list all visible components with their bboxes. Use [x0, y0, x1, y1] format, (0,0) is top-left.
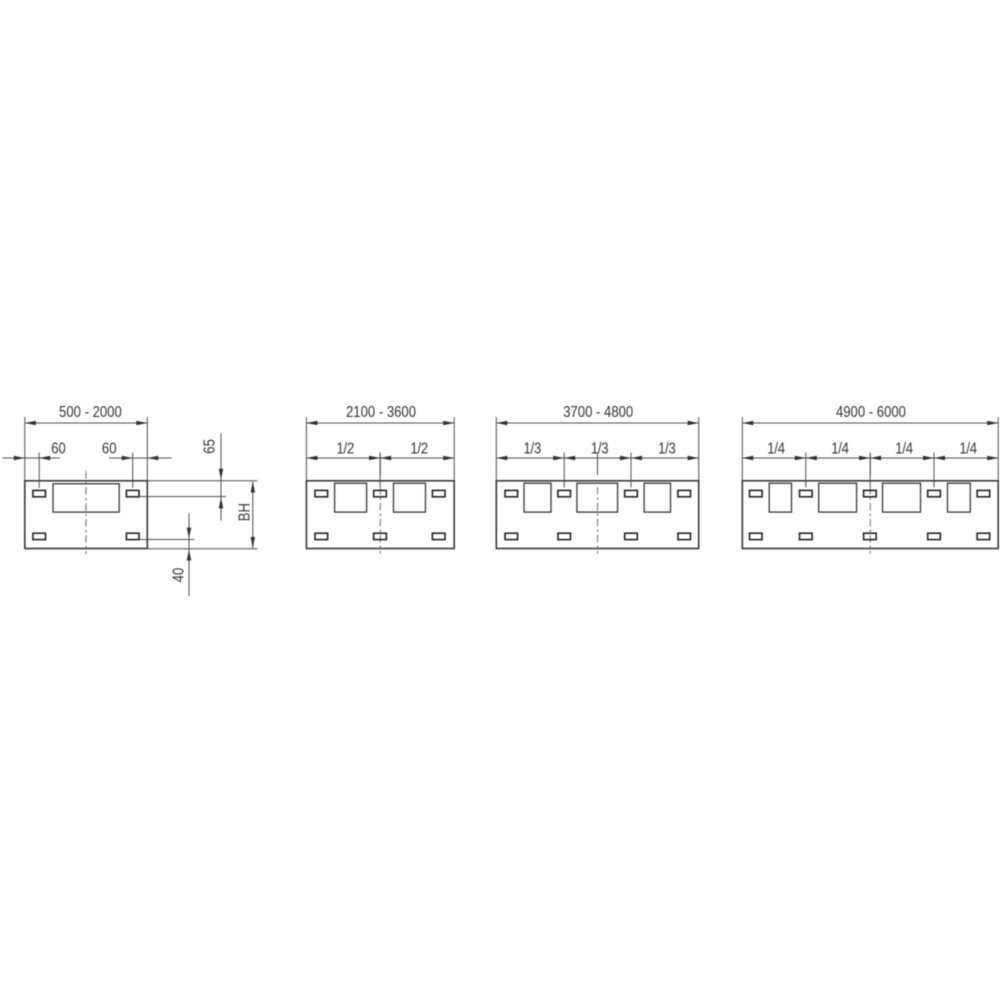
svg-text:3700 - 4800: 3700 - 4800	[563, 404, 633, 421]
svg-text:65: 65	[201, 439, 218, 454]
svg-text:4900 - 6000: 4900 - 6000	[836, 404, 906, 421]
svg-text:1/2: 1/2	[410, 440, 428, 457]
svg-text:BH: BH	[236, 503, 253, 521]
svg-text:40: 40	[170, 568, 187, 583]
svg-text:1/2: 1/2	[336, 440, 354, 457]
svg-text:1/4: 1/4	[831, 440, 849, 457]
svg-text:60: 60	[102, 440, 117, 457]
svg-text:2100 - 3600: 2100 - 3600	[346, 404, 416, 421]
svg-text:1/4: 1/4	[895, 440, 913, 457]
svg-text:1/3: 1/3	[591, 440, 609, 457]
svg-text:1/4: 1/4	[767, 440, 785, 457]
svg-text:1/3: 1/3	[658, 440, 676, 457]
svg-text:1/4: 1/4	[959, 440, 977, 457]
svg-text:1/3: 1/3	[523, 440, 541, 457]
svg-text:500 - 2000: 500 - 2000	[59, 404, 122, 421]
svg-text:60: 60	[51, 440, 66, 457]
